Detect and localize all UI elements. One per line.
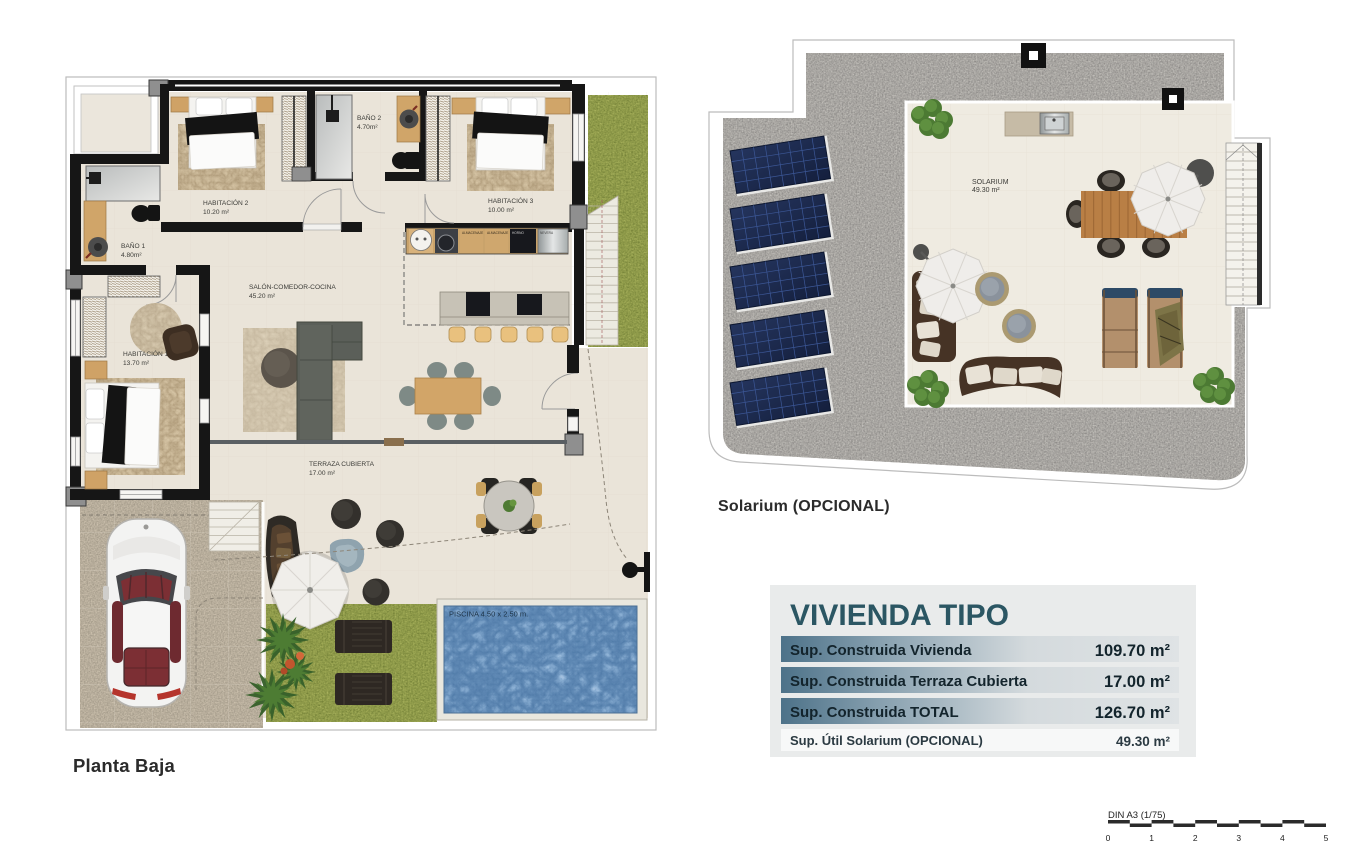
svg-text:ALMACENAJE: ALMACENAJE [462, 231, 483, 235]
svg-text:49.30 m²: 49.30 m² [1116, 734, 1171, 749]
svg-text:10.00 m²: 10.00 m² [488, 207, 515, 214]
svg-text:4: 4 [1280, 833, 1285, 843]
svg-text:SOLARIUM: SOLARIUM [972, 179, 1009, 186]
svg-text:2: 2 [1193, 833, 1198, 843]
svg-text:45.20 m²: 45.20 m² [249, 293, 276, 300]
svg-text:BAÑO 2: BAÑO 2 [357, 113, 382, 122]
svg-text:Solarium (OPCIONAL): Solarium (OPCIONAL) [718, 498, 890, 515]
svg-text:ALMACENAJE: ALMACENAJE [487, 231, 508, 235]
svg-text:5: 5 [1324, 833, 1329, 843]
svg-text:DIN A3 (1/75): DIN A3 (1/75) [1108, 810, 1166, 821]
svg-text:1: 1 [1149, 833, 1154, 843]
svg-text:Sup. Útil Solarium (OPCIONAL): Sup. Útil Solarium (OPCIONAL) [790, 733, 983, 748]
svg-text:NEVERA: NEVERA [540, 231, 554, 235]
svg-text:13.70 m²: 13.70 m² [123, 360, 150, 367]
svg-text:109.70 m²: 109.70 m² [1095, 642, 1171, 660]
svg-text:17.00 m²: 17.00 m² [1104, 673, 1171, 691]
svg-text:Sup. Construida Terraza Cubier: Sup. Construida Terraza Cubierta [790, 673, 1028, 690]
svg-text:4.70m²: 4.70m² [357, 124, 378, 131]
svg-text:VIVIENDA TIPO: VIVIENDA TIPO [790, 599, 1009, 632]
svg-text:10.20 m²: 10.20 m² [203, 209, 230, 216]
svg-text:HABITACIÓN 2: HABITACIÓN 2 [203, 198, 249, 207]
svg-text:HABITACIÓN 1: HABITACIÓN 1 [123, 349, 169, 358]
svg-text:Planta Baja: Planta Baja [73, 755, 175, 776]
svg-text:PISCINA 4.50 x 2.50 m.: PISCINA 4.50 x 2.50 m. [449, 610, 528, 619]
svg-text:Sup. Construida Vivienda: Sup. Construida Vivienda [790, 642, 972, 659]
svg-text:3: 3 [1236, 833, 1241, 843]
svg-text:TERRAZA CUBIERTA: TERRAZA CUBIERTA [309, 461, 375, 468]
svg-text:BAÑO 1: BAÑO 1 [121, 241, 146, 250]
svg-text:Sup. Construida TOTAL: Sup. Construida TOTAL [790, 704, 959, 721]
svg-text:49.30 m²: 49.30 m² [972, 187, 1000, 194]
svg-text:HABITACIÓN 3: HABITACIÓN 3 [488, 196, 534, 205]
svg-text:SALÓN-COMEDOR-COCINA: SALÓN-COMEDOR-COCINA [249, 282, 336, 291]
svg-text:126.70 m²: 126.70 m² [1095, 704, 1171, 722]
svg-text:17.00 m²: 17.00 m² [309, 470, 336, 477]
svg-text:4.80m²: 4.80m² [121, 252, 142, 259]
svg-text:0: 0 [1106, 833, 1111, 843]
svg-text:HORNO: HORNO [512, 231, 524, 235]
